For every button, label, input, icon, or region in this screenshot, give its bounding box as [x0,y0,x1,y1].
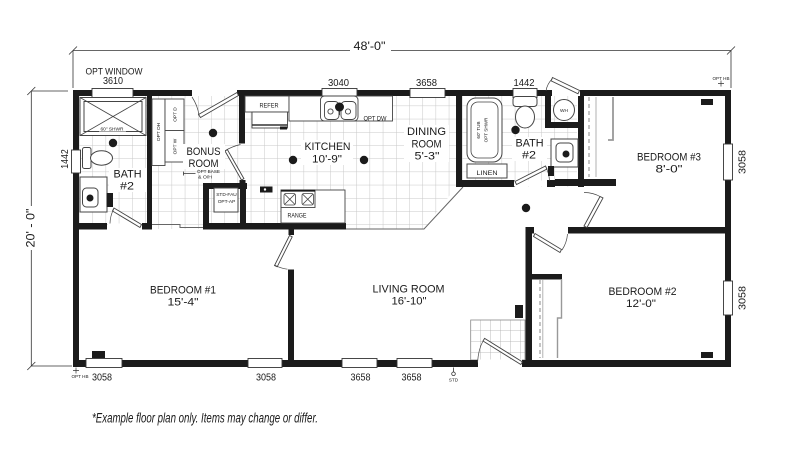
svg-text:3058: 3058 [738,150,749,174]
svg-text:15'-4": 15'-4" [168,297,199,309]
svg-text:BEDROOM #2: BEDROOM #2 [609,286,677,298]
svg-text:1442: 1442 [514,78,535,89]
svg-text:OPT W: OPT W [173,138,179,154]
svg-text:BEDROOM #3: BEDROOM #3 [637,152,701,164]
svg-text:BATH: BATH [516,138,544,150]
svg-text:*Example floor plan only. Item: *Example floor plan only. Items may chan… [92,411,318,426]
svg-text:& O/H: & O/H [198,175,212,180]
svg-text:OPT D: OPT D [173,107,179,122]
svg-text:STD-FAU: STD-FAU [216,192,237,198]
svg-text:5'-3": 5'-3" [415,151,440,163]
svg-text:#2: #2 [522,150,536,162]
svg-text:3658: 3658 [351,373,371,384]
svg-text:OPT SHWR: OPT SHWR [484,117,489,142]
svg-text:ROOM: ROOM [189,158,219,170]
svg-text:3610: 3610 [103,76,123,87]
svg-text:OPT DW: OPT DW [364,116,387,123]
svg-text:3658: 3658 [402,373,422,384]
svg-text:1442: 1442 [60,149,71,169]
svg-text:3058: 3058 [738,286,749,310]
svg-text:LINEN: LINEN [477,170,498,177]
svg-text:BEDROOM #1: BEDROOM #1 [150,285,216,297]
svg-text:3658: 3658 [416,78,437,89]
svg-text:3058: 3058 [256,373,276,384]
svg-text:WH: WH [560,108,569,114]
svg-text:3058: 3058 [92,373,112,384]
svg-text:DINING: DINING [407,126,446,138]
svg-text:60" TUB: 60" TUB [476,121,481,138]
svg-text:BONUS: BONUS [187,146,221,158]
svg-text:BATH: BATH [114,169,142,181]
svg-text:ROOM: ROOM [412,139,442,151]
svg-text:RANGE: RANGE [288,213,307,220]
svg-text:60" SHWR: 60" SHWR [101,127,125,133]
svg-text:OPT HB: OPT HB [71,374,88,379]
svg-text:10'-9": 10'-9" [312,154,342,166]
svg-text:OPT OH: OPT OH [156,122,162,141]
svg-text:12'-0": 12'-0" [626,298,656,310]
svg-text:OPT HB: OPT HB [712,76,729,81]
svg-text:OPT-AP: OPT-AP [218,199,236,205]
svg-text:#2: #2 [120,181,134,193]
svg-text:20' - 0": 20' - 0" [24,209,38,248]
svg-text:STD: STD [449,378,459,383]
svg-text:8'-0": 8'-0" [656,164,683,176]
svg-text:KITCHEN: KITCHEN [305,141,351,153]
svg-text:48'-0": 48'-0" [354,39,386,53]
svg-text:REFER: REFER [260,103,279,110]
svg-text:16'-10": 16'-10" [392,296,427,308]
svg-text:LIVING ROOM: LIVING ROOM [373,284,445,296]
svg-text:3040: 3040 [328,78,349,89]
